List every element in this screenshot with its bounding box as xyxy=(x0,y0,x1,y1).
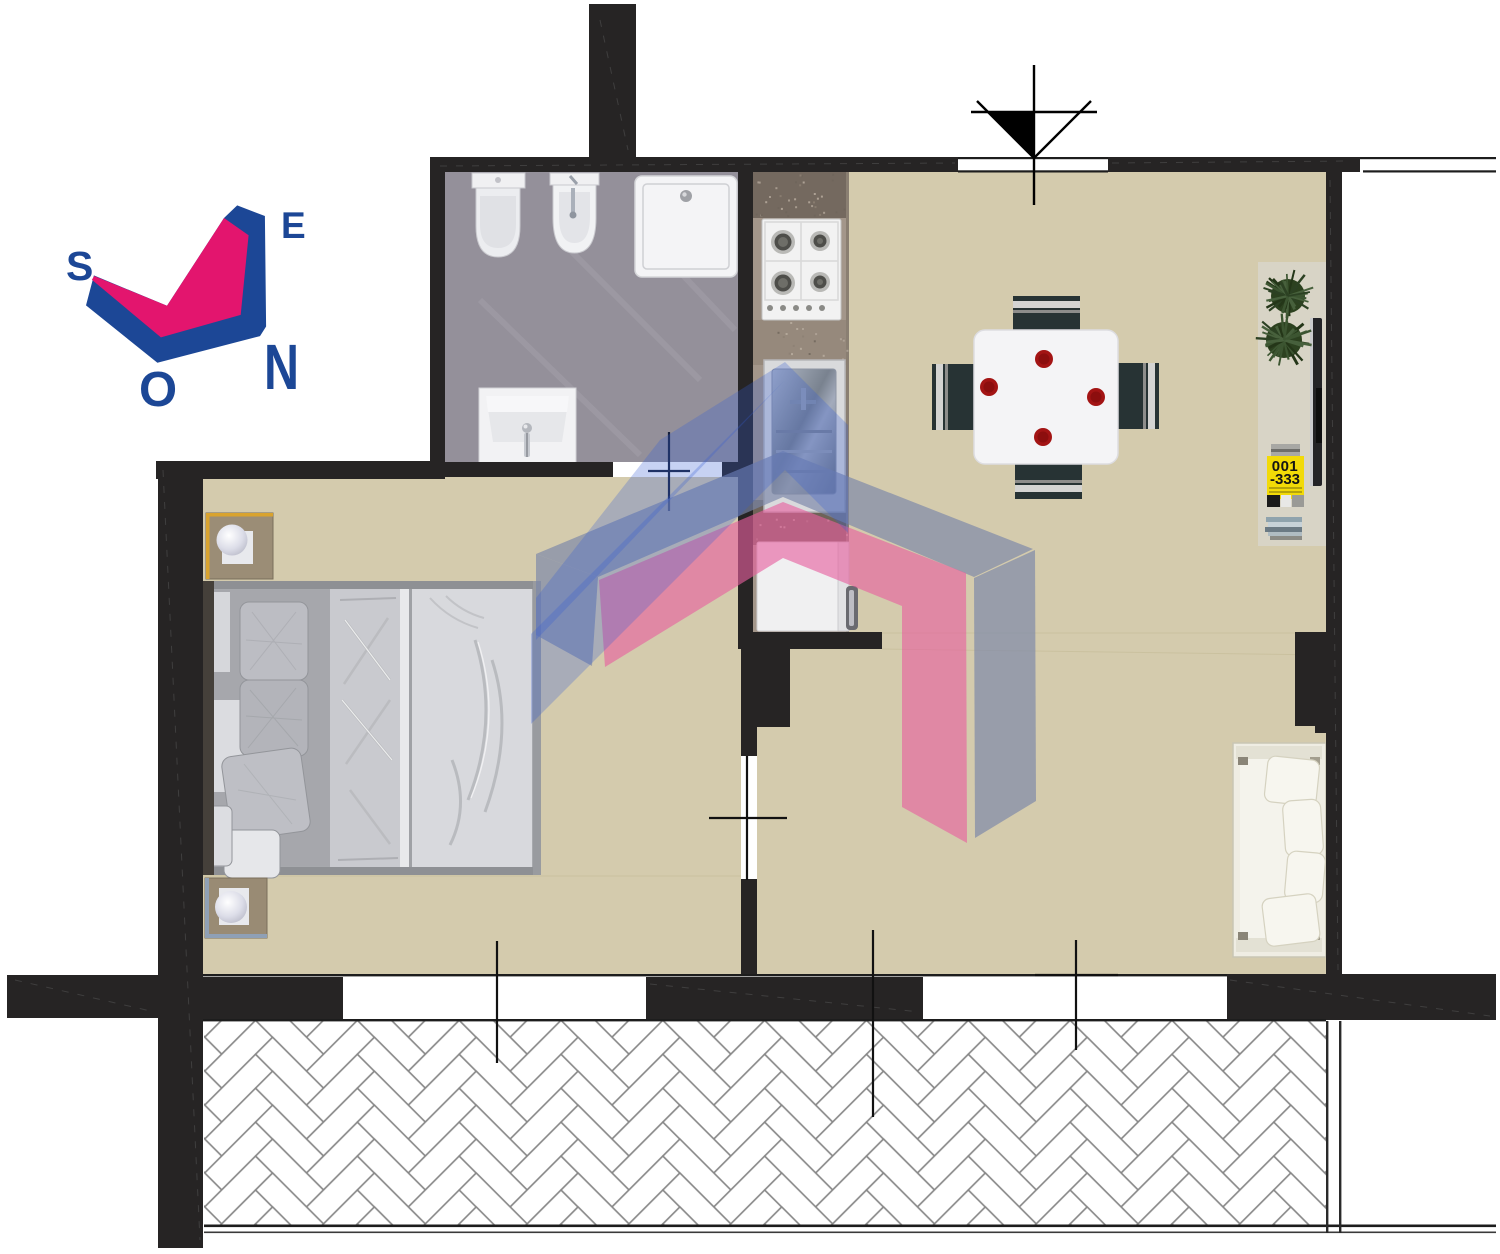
svg-text:-333: -333 xyxy=(1270,471,1300,488)
svg-text:N: N xyxy=(264,331,299,403)
svg-text:S: S xyxy=(66,243,93,289)
svg-text:O: O xyxy=(139,363,177,417)
svg-text:E: E xyxy=(281,205,306,246)
